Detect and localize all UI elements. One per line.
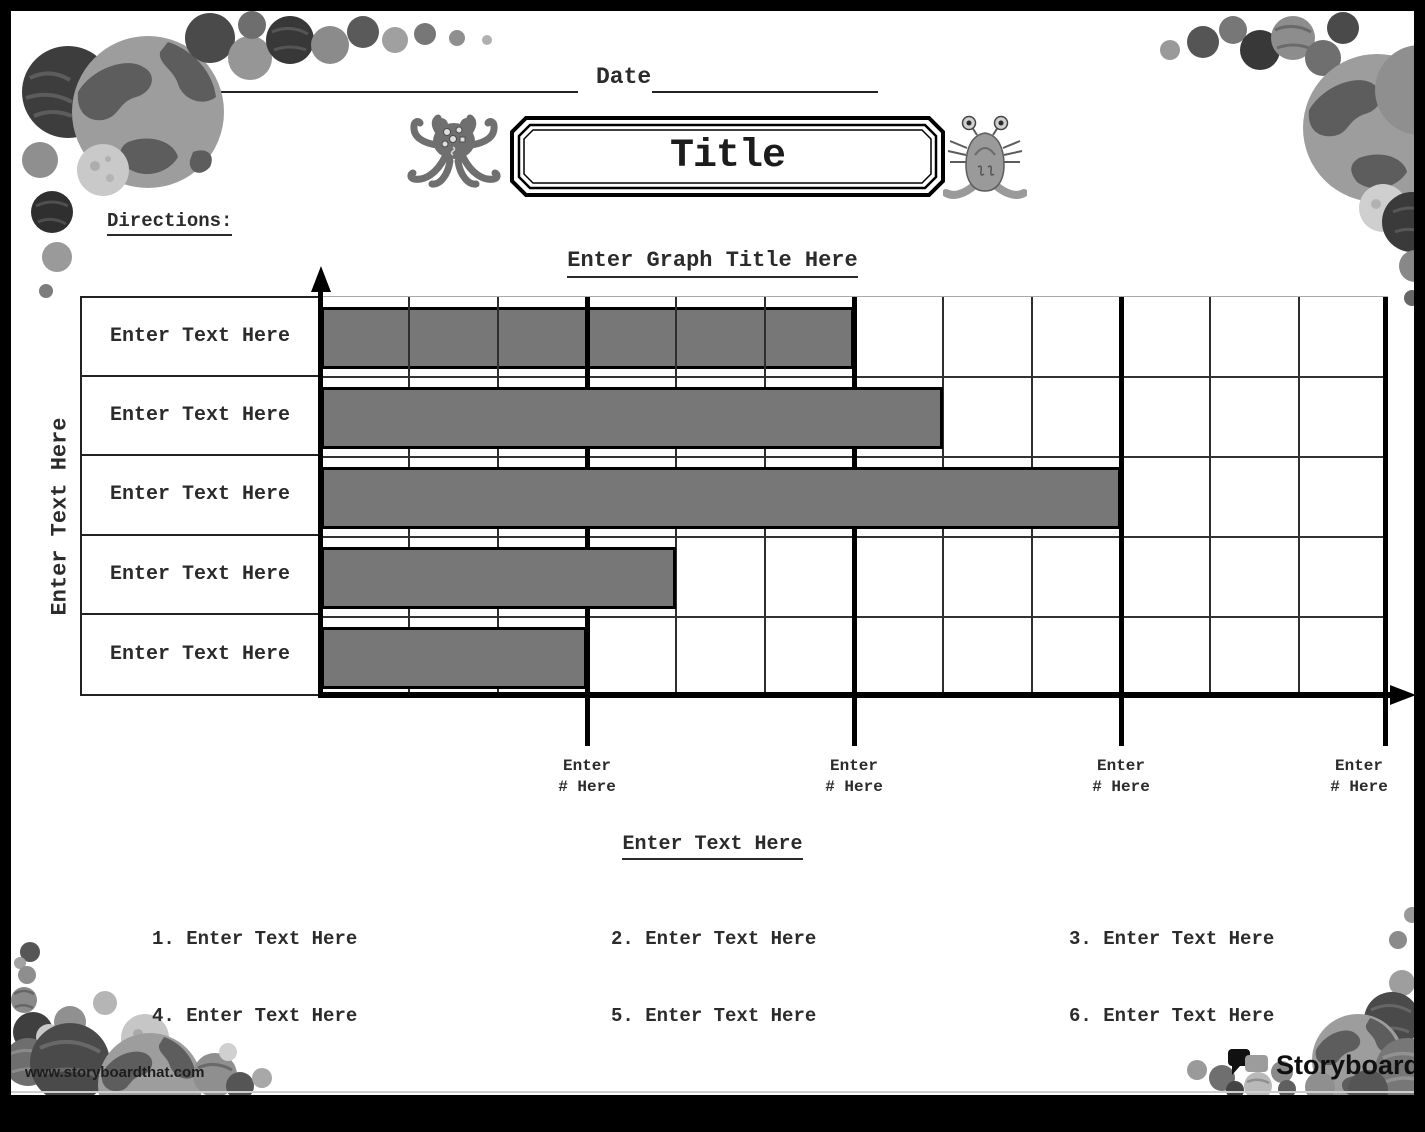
title-text[interactable]: Title bbox=[510, 116, 945, 197]
page-border-top bbox=[0, 0, 1425, 11]
major-tick-mark bbox=[1119, 698, 1124, 746]
x-tick-label[interactable]: Enter# Here bbox=[558, 756, 616, 798]
plot-area bbox=[320, 296, 1388, 697]
x-tick-label[interactable]: Enter# Here bbox=[825, 756, 883, 798]
page-border-bottom bbox=[0, 1095, 1425, 1132]
title-box[interactable]: Title bbox=[510, 116, 945, 197]
category-label[interactable]: Enter Text Here bbox=[82, 298, 318, 377]
below-chart-subtitle[interactable]: Enter Text Here bbox=[0, 833, 1425, 856]
date-blank-line[interactable] bbox=[652, 91, 878, 93]
list-item[interactable]: 5. Enter Text Here bbox=[611, 1005, 816, 1027]
bar[interactable] bbox=[321, 387, 943, 449]
minor-gridline bbox=[1298, 297, 1300, 697]
list-item[interactable]: 4. Enter Text Here bbox=[152, 1005, 357, 1027]
major-tick-mark bbox=[852, 698, 857, 746]
y-axis-title[interactable]: Enter Text Here bbox=[22, 416, 222, 616]
x-tick-label[interactable]: Enter# Here bbox=[1092, 756, 1150, 798]
category-label[interactable]: Enter Text Here bbox=[82, 615, 318, 694]
date-label: Date bbox=[596, 64, 651, 90]
list-item[interactable]: 2. Enter Text Here bbox=[611, 928, 816, 950]
list-item[interactable]: 6. Enter Text Here bbox=[1069, 1005, 1274, 1027]
page-border-right bbox=[1414, 0, 1425, 1132]
minor-gridline bbox=[1209, 297, 1211, 697]
website-url: www.storyboardthat.com bbox=[25, 1064, 204, 1081]
page-border-left bbox=[0, 0, 11, 1132]
bar[interactable] bbox=[321, 547, 676, 609]
x-tick-label[interactable]: Enter# Here bbox=[1330, 756, 1388, 798]
major-tick-mark bbox=[1383, 698, 1388, 746]
chart-title[interactable]: Enter Graph Title Here bbox=[0, 248, 1425, 273]
storyboard-that-logo: StoryboardThat bbox=[1228, 1046, 1425, 1084]
worksheet-page: Name Date Title bbox=[0, 0, 1425, 1132]
y-axis-arrowhead-icon bbox=[311, 266, 331, 292]
list-item[interactable]: 1. Enter Text Here bbox=[152, 928, 357, 950]
bar[interactable] bbox=[321, 467, 1121, 529]
major-gridline bbox=[1383, 297, 1388, 697]
bar[interactable] bbox=[321, 627, 587, 689]
bottom-border-shadow bbox=[11, 1091, 1414, 1093]
list-item[interactable]: 3. Enter Text Here bbox=[1069, 928, 1274, 950]
x-axis-arrowhead-icon bbox=[1390, 685, 1416, 705]
major-tick-mark bbox=[585, 698, 590, 746]
speech-bubbles-icon bbox=[1228, 1046, 1270, 1084]
y-axis-line bbox=[318, 288, 323, 698]
